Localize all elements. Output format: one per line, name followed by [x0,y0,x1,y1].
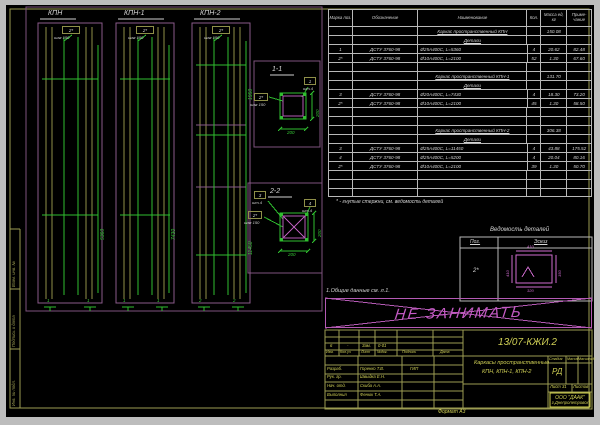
spec-cell: 4 [528,45,542,53]
spec-cell [329,171,353,179]
spec-cell: ДСТУ 3760-98 [353,45,419,53]
spec-cell: 82.48 [567,45,591,53]
spec-cell [541,189,567,197]
revision-header: №док. [377,351,388,355]
section-title-1-1: 1-1 [272,66,282,73]
revision-header: Лист [361,351,370,355]
spec-cell: 20.04 [541,153,567,161]
mass-header: Масса [567,358,578,362]
spec-row: Каркас пространственный КПН150.08 [329,27,591,36]
spec-cell [567,27,591,35]
spec-row [329,63,591,72]
spec-cell [353,189,419,197]
spec-cell [353,63,419,71]
spec-cell [567,189,591,197]
spec-cell: 1.30 [541,54,567,62]
cut-mark-label: 1 [123,299,126,304]
spec-cell [541,36,567,44]
spec-cell: Каркас пространственный КПН-2 [418,126,527,134]
spec-cell: Ø10А400С, L=2100 [418,99,527,107]
spec-cell: 52 [528,54,542,62]
revision-header: Кол.уч [340,351,351,355]
spec-cell [353,135,419,143]
spec-cell [527,27,541,35]
frame-label-inv: Инв. № подл. [12,380,16,406]
qty-label: шт.4 [303,87,313,91]
spec-cell [353,36,419,44]
staff-extra: ГИП [410,367,418,371]
spec-cell [329,180,353,188]
step-label: шаг 150 [250,103,265,107]
spec-cell [541,117,567,125]
spec-cell [353,117,419,125]
revision-value: - [347,344,348,348]
spec-cell [418,189,527,197]
spec-cell [353,72,419,80]
height-dimension: 11450 [249,241,254,255]
spec-cell [353,27,419,35]
staff-role: Разраб. [327,367,342,371]
position-tag: 2* [254,93,268,101]
sheets-total: Листов [573,385,588,389]
spec-row: Каркас пространственный КПН-1131.70 [329,72,591,81]
staff-role: Нач. отд. [327,384,346,388]
vedomost-title: Ведомость деталей [490,227,549,233]
spec-cell [418,180,527,188]
frame-label-vzam: Взам. инв. № [12,261,16,287]
spec-cell: 2* [329,54,353,62]
spec-cell: ДСТУ 3760-98 [353,99,419,107]
spec-cell [541,81,567,89]
position-tag: 3 [254,191,266,199]
spec-cell [329,126,353,134]
stage-header: Стадия [549,358,562,362]
spec-cell [329,27,353,35]
sketch-dim-top: 410 [527,245,534,249]
cut-mark-label: 1 [157,299,160,304]
spec-row: Детали [329,81,591,90]
spec-cell [353,108,419,116]
watermark-box: НЕ ЗАНИМАТЬ [325,298,592,328]
spec-cell [567,171,591,179]
spec-cell: Детали [418,135,527,143]
cad-screenshot: { "colors": { "frame":"#9c9c52", "green"… [0,0,600,425]
spec-cell: 2* [329,162,353,170]
spec-cell: 2* [329,99,353,107]
vedomost-col-pos: Поз. [470,240,480,245]
spec-row: 2*ДСТУ 3760-98Ø10А400С, L=2100391.3050.7… [329,162,591,171]
position-tag: 2* [62,26,80,34]
spec-cell [353,180,419,188]
spec-cell [353,81,419,89]
spec-cell [527,117,541,125]
drawing-sheet: Взам. инв. № Подпись и дата Инв. № подл.… [6,5,594,417]
project-title-line2: КПН, КПН-1, КПН-2 [482,370,532,376]
spec-cell: 1.30 [541,99,567,107]
qty-label: шт.4 [252,201,262,205]
height-dimension: 7430 [172,229,177,240]
spec-cell: 50.70 [567,162,591,170]
spec-row [329,117,591,126]
spec-row [329,180,591,189]
section-title-2-2: 2-2 [270,188,280,195]
height-dimension: 200 [318,229,323,237]
spec-cell [329,108,353,116]
spec-cell: 4 [528,144,542,152]
spec-cell [527,126,541,134]
spec-cell [418,108,527,116]
spec-cell: 73.20 [567,90,591,98]
spec-cell: 1 [329,45,353,53]
spec-row: Каркас пространственный КПН-2306.38 [329,126,591,135]
spec-footnote: * - гнутые стержни, см. ведомость детале… [336,200,443,205]
spec-row: 1ДСТУ 3760-98Ø25А400С, L=5360420.6282.48 [329,45,591,54]
step-label: шаг 150 [204,36,219,40]
spec-header-row: Марка поз. Обозначение Наименование Кол.… [329,10,591,27]
position-tag: 4 [304,199,316,207]
revision-value: 6 [330,344,332,348]
spec-cell: 1.30 [541,162,567,170]
step-label: шаг 150 [244,221,259,225]
spec-header-qty: Кол. [527,10,541,26]
width-dimension: 200 [287,131,295,136]
stage-value: РД [552,368,562,376]
spec-cell [527,36,541,44]
column-title-kpn1: КПН-1 [124,10,144,17]
spec-cell: 131.70 [541,72,567,80]
spec-cell [329,63,353,71]
spec-cell: Ø25А400С, L=5360 [418,45,527,53]
spec-cell: Каркас пространственный КПН [418,27,527,35]
scale-header: Масштаб [578,358,595,362]
staff-name: Фенюк Т.А. [360,393,382,397]
spec-cell [567,135,591,143]
spec-cell [567,108,591,116]
revision-header: Дата [440,351,449,355]
spec-row: 4ДСТУ 3760-98Ø25А400С, L=5200420.0480.16 [329,153,591,162]
spec-cell [527,189,541,197]
spec-cell [567,180,591,188]
spec-cell [567,117,591,125]
spec-cell: 4 [329,153,353,161]
spec-row: 2*ДСТУ 3760-98Ø10А400С, L=2100451.3058.5… [329,99,591,108]
spec-cell: 3 [329,90,353,98]
spec-cell: 20.62 [541,45,567,53]
spec-cell [527,72,541,80]
spec-cell: ДСТУ 3760-98 [353,153,419,161]
column-title-kpn: КПН [48,10,62,17]
spec-cell [527,180,541,188]
company-city: г.Днепропетровск [552,401,589,405]
spec-cell [418,117,527,125]
spec-cell [527,108,541,116]
spec-header-mass: Масса ед, кг [541,10,567,26]
spec-cell: 175.52 [567,144,591,152]
spec-cell: 4 [528,153,542,161]
spec-cell: 45 [528,99,542,107]
spec-header-name: Наименование [418,10,527,26]
spec-cell: 67.60 [567,54,591,62]
spec-cell: ДСТУ 3760-98 [353,54,419,62]
position-tag: 1 [304,77,316,85]
watermark-text: НЕ ЗАНИМАТЬ [393,303,523,322]
company-cell: ООО "ДААК" г.Днепропетровск [548,392,592,409]
format-label: Формат А3 [438,410,465,415]
spec-cell [541,63,567,71]
sketch-dim-right: 150 [558,270,562,277]
spec-row: 2*ДСТУ 3760-98Ø10А400С, L=2100521.3067.6… [329,54,591,63]
spec-cell [567,81,591,89]
spec-cell: Ø10А400С, L=2100 [418,162,527,170]
position-tag: 2* [248,211,262,219]
spec-cell [527,171,541,179]
position-tag: 2* [136,26,154,34]
spec-cell: Детали [418,36,527,44]
spec-row [329,108,591,117]
spec-cell [527,63,541,71]
height-dimension: 200 [316,109,321,117]
revision-header: Подпись [402,351,416,355]
spec-cell: Детали [418,81,527,89]
revision-header: Изм. [326,351,334,355]
spec-cell [567,126,591,134]
spec-cell [329,72,353,80]
staff-role: Выполнил [327,393,347,397]
spec-cell [418,63,527,71]
spec-cell: 80.16 [567,153,591,161]
spec-cell [527,135,541,143]
spec-cell: Каркас пространственный КПН-1 [418,72,527,80]
spec-header-note: Приме- чание [567,10,591,26]
spec-cell [527,81,541,89]
spec-cell [329,36,353,44]
spec-cell: 4 [528,90,542,98]
spec-cell: Ø10А400С, L=2100 [418,54,527,62]
spec-header-pos: Марка поз. [329,10,353,26]
spec-cell [541,135,567,143]
spec-cell: 18.30 [541,90,567,98]
project-title-line1: Каркасы пространственные [474,361,549,367]
spec-cell: ДСТУ 3760-98 [353,90,419,98]
cut-mark-label: 1 [47,299,50,304]
spec-cell: ДСТУ 3760-98 [353,162,419,170]
spec-cell [329,81,353,89]
sketch-dim-bottom: 320 [527,289,534,293]
spec-cell: Ø25А400С, L=11450 [418,144,527,152]
sketch-dim-left: 410 [506,270,510,277]
height-dimension: 5360 [101,229,106,240]
sheet-number: Лист 31 [550,385,567,389]
general-note: 1.Общие данные см. л.1. [326,289,390,295]
spec-row: 3ДСТУ 3760-98Ø20А400С, L=7430418.3073.20 [329,90,591,99]
spec-cell: ДСТУ 3760-98 [353,144,419,152]
staff-name: Швыдка Е.Н. [360,375,385,379]
spec-header-oboz: Обозначение [353,10,419,26]
spec-row [329,171,591,180]
vedomost-col-sketch: Эскиз [534,240,547,245]
cut-mark-label: 2 [199,299,202,304]
revision-value: 0-01 [378,344,386,348]
staff-name: Скиба А.А. [360,384,381,388]
spec-row: Детали [329,36,591,45]
spec-cell: 39 [528,162,542,170]
position-tag: 2* [212,26,230,34]
spec-cell [353,126,419,134]
cut-mark-label: 2 [233,299,236,304]
spec-cell: Ø25А400С, L=5200 [418,153,527,161]
spec-table: Марка поз. Обозначение Наименование Кол.… [328,9,592,197]
doc-number: 13/07-КЖИ.2 [463,330,592,356]
qty-label: шт.4 [302,209,312,213]
spec-row [329,189,591,197]
staff-name: Горенко Т.В. [360,367,384,371]
spec-cell [329,135,353,143]
step-label: шаг 150 [54,36,69,40]
spec-cell [418,171,527,179]
spec-cell: 306.38 [541,126,567,134]
spec-cell [541,108,567,116]
spec-cell [541,180,567,188]
spec-cell: 43.88 [541,144,567,152]
cut-mark-label: 1 [87,299,90,304]
spec-cell: Ø20А400С, L=7430 [418,90,527,98]
spec-cell [329,189,353,197]
vedomost-row-pos: 2* [473,268,479,274]
spec-cell: 58.50 [567,99,591,107]
spec-cell [567,63,591,71]
spec-body: Каркас пространственный КПН150.08Детали1… [329,27,591,197]
spec-cell [329,117,353,125]
staff-role: Рук. гр. [327,375,342,379]
step-label: шаг 150 [128,36,143,40]
column-title-kpn2: КПН-2 [200,10,220,17]
spec-row: Детали [329,135,591,144]
spec-cell [567,36,591,44]
spec-cell [353,171,419,179]
spec-cell [541,171,567,179]
revision-value: Зам. [362,344,371,348]
spec-cell [567,72,591,80]
width-dimension: 200 [288,253,296,258]
frame-label-podpis: Подпись и дата [12,315,16,347]
spec-cell: 3 [329,144,353,152]
spec-cell: 150.08 [541,27,567,35]
spec-row: 3ДСТУ 3760-98Ø25А400С, L=11450443.88175.… [329,144,591,153]
